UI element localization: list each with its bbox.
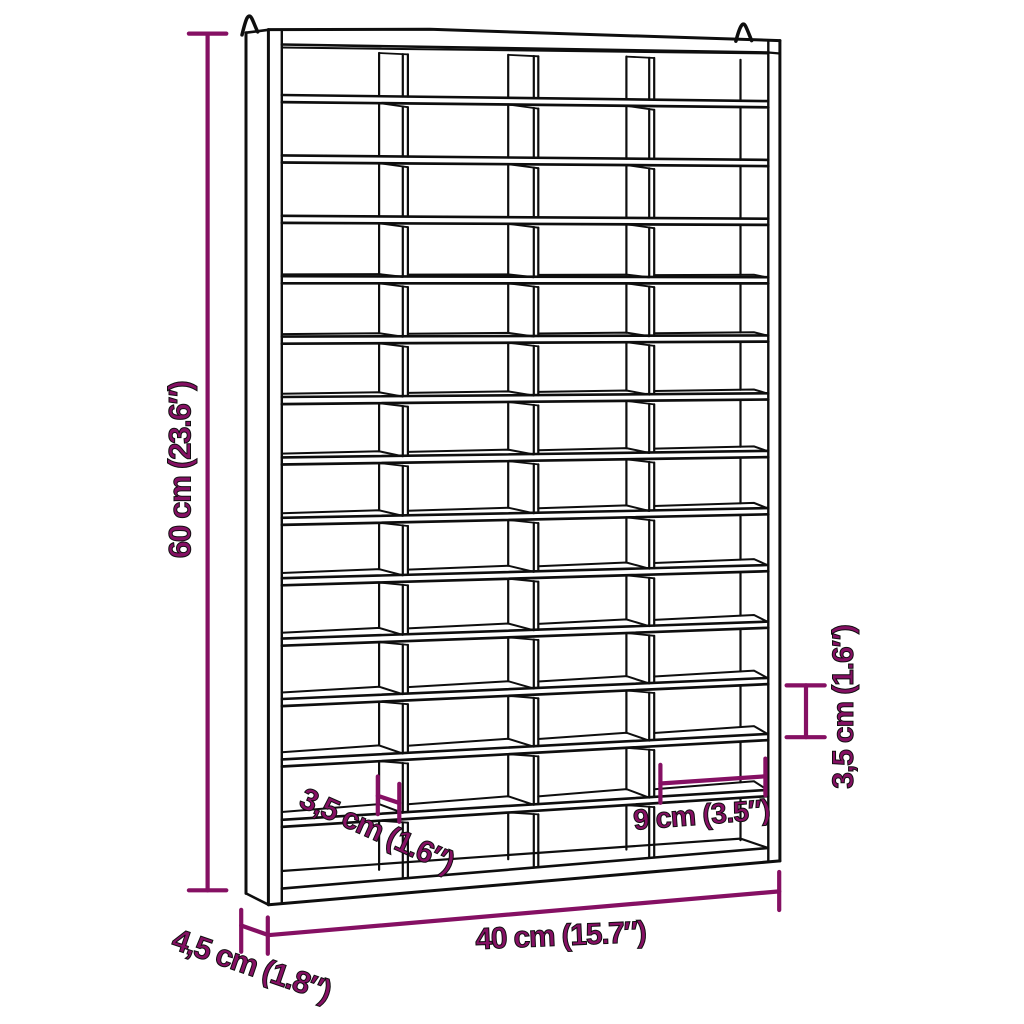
svg-text:9 cm (3.5″): 9 cm (3.5″) bbox=[632, 794, 771, 837]
svg-text:4,5 cm (1.8″): 4,5 cm (1.8″) bbox=[168, 922, 336, 1009]
svg-text:60 cm (23.6″): 60 cm (23.6″) bbox=[162, 382, 197, 559]
svg-text:3,5 cm (1.6″): 3,5 cm (1.6″) bbox=[827, 625, 860, 789]
svg-text:40 cm (15.7″): 40 cm (15.7″) bbox=[475, 916, 647, 956]
